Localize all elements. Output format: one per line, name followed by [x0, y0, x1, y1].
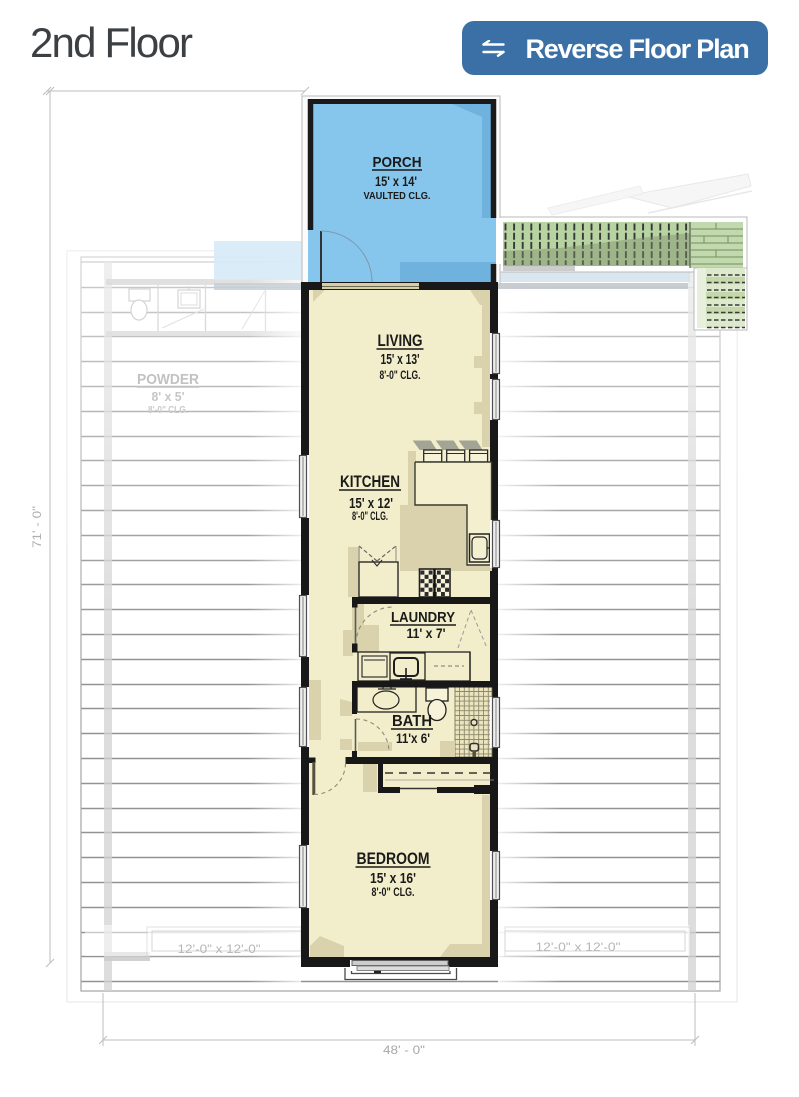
svg-text:48' - 0": 48' - 0" [383, 1043, 425, 1057]
svg-text:8'-0" CLG.: 8'-0" CLG. [380, 370, 421, 382]
svg-text:15' x 16': 15' x 16' [370, 870, 416, 887]
svg-text:12'-0" x 12'-0": 12'-0" x 12'-0" [536, 940, 621, 954]
svg-text:KITCHEN: KITCHEN [340, 472, 400, 491]
svg-text:8'-0" CLG.: 8'-0" CLG. [372, 887, 415, 899]
svg-text:LIVING: LIVING [378, 331, 423, 350]
svg-text:11'x 6': 11'x 6' [396, 730, 430, 746]
svg-text:BEDROOM: BEDROOM [357, 849, 430, 868]
svg-text:15' x 12': 15' x 12' [349, 495, 393, 512]
svg-text:8' x 5': 8' x 5' [152, 389, 185, 404]
svg-text:VAULTED CLG.: VAULTED CLG. [364, 190, 431, 202]
svg-text:8'-0" CLG.: 8'-0" CLG. [352, 511, 388, 523]
svg-text:LAUNDRY: LAUNDRY [391, 609, 455, 626]
svg-text:15' x 13': 15' x 13' [381, 351, 420, 368]
svg-text:12'-0" x 12'-0": 12'-0" x 12'-0" [178, 942, 261, 956]
svg-text:PORCH: PORCH [373, 154, 422, 171]
svg-text:15' x 14': 15' x 14' [375, 173, 417, 189]
svg-text:BATH: BATH [392, 713, 432, 730]
svg-text:8'-0" CLG.: 8'-0" CLG. [148, 405, 188, 416]
svg-text:11' x 7': 11' x 7' [407, 625, 446, 641]
svg-text:POWDER: POWDER [137, 371, 199, 388]
svg-text:71' - 0": 71' - 0" [30, 506, 44, 548]
